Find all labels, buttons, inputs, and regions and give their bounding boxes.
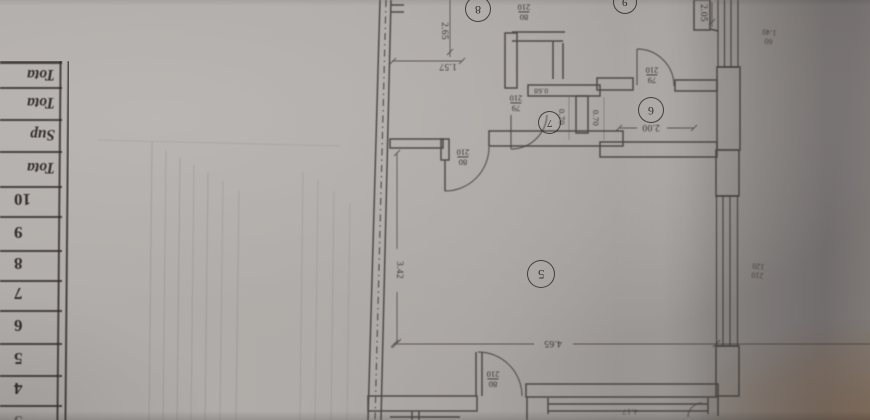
door-size-label: 79210	[646, 66, 659, 85]
dimension-0-68: 0.68	[534, 87, 548, 96]
dimension-0-70: 0.70	[591, 110, 601, 126]
table-row-5: 5	[0, 343, 62, 375]
window-size-label: 210120	[751, 261, 765, 280]
dimension-4-65: 4.65	[544, 338, 562, 348]
ghost-lines	[98, 140, 350, 420]
table-row-total: Tota	[0, 151, 62, 186]
dimension-2-00: 2.00	[642, 122, 660, 132]
floor-plan-photo: 5 6 7 8 9 80210 79210 79210 80210 80210 …	[0, 0, 870, 420]
table-row-7: 7	[0, 280, 62, 310]
dimension-4-17: 4.17	[622, 407, 638, 417]
table-row-6: 6	[0, 310, 62, 343]
door-size-label: 80210	[457, 148, 470, 167]
window-size-label: 601.40	[761, 27, 777, 46]
table-row-total: Tota	[0, 87, 62, 119]
door-size-label: 80210	[487, 370, 500, 389]
table-row-4: 4	[0, 375, 62, 405]
table-row-3: 3	[0, 405, 62, 420]
dimension-2-05: 2.05	[698, 4, 708, 22]
table-row-9: 9	[0, 216, 62, 250]
dimension-lines	[390, 0, 870, 348]
floor-plan-drawing	[0, 0, 870, 420]
table-row-total: Tota	[0, 63, 62, 87]
dimension-3-42: 3.42	[394, 261, 404, 279]
door-size-label: 79210	[510, 94, 523, 113]
window-lines	[716, 0, 738, 346]
room-label-5: 5	[527, 260, 555, 288]
dimension-0-70: 0.70	[557, 109, 567, 125]
room-label-6: 6	[638, 97, 664, 123]
area-table: Tota Tota Sup Tota 10 9 8 7 6 5 4 3	[0, 61, 69, 420]
dimension-1-57: 1.57	[439, 61, 457, 71]
table-border	[64, 61, 69, 420]
table-row-sup: Sup	[0, 119, 62, 151]
wall-lines	[368, 0, 740, 420]
table-row-10: 10	[0, 186, 62, 216]
door-size-label: 80210	[518, 3, 531, 22]
table-row-8: 8	[0, 250, 62, 280]
dimension-2-65: 2.65	[439, 22, 449, 40]
